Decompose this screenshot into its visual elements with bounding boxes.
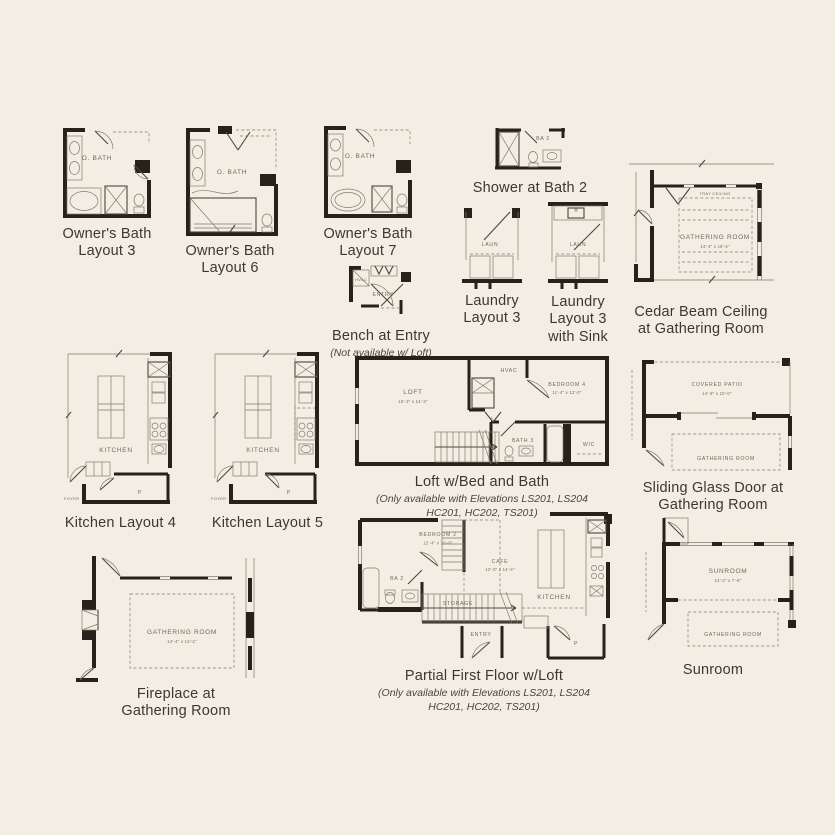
ba2-label: BA 2 (390, 576, 404, 582)
foyer-label: FOYER (211, 496, 226, 501)
room-dims: 14'-4" x 13'-2" (167, 639, 197, 644)
room-label: GATHERING ROOM (147, 629, 217, 636)
bedroom4-dims: 11'-4" x 12'-0" (552, 390, 581, 395)
laundry-3-sink-drawing: LAUN (546, 198, 610, 290)
room-label: O. BATH (345, 153, 375, 160)
plan-caption: Sliding Glass Door at Gathering Room (643, 480, 783, 515)
plan-caption: Owner's Bath Layout 6 (186, 243, 275, 278)
bedroom4-label: BEDROOM 4 (548, 382, 585, 388)
caption-line: Laundry (463, 293, 520, 310)
caption-line: Owner's Bath (324, 226, 413, 243)
sunroom-drawing: SUNROOM 14'-2" x 7'-8" GATHERING ROOM (624, 516, 802, 658)
fireplace-drawing: GATHERING ROOM 14'-4" x 13'-2" (72, 550, 280, 682)
caption-line: Kitchen Layout 5 (212, 515, 323, 532)
caption-note: (Only available with Elevations LS201, L… (378, 687, 590, 701)
plan-caption: Cedar Beam Ceiling at Gathering Room (634, 304, 767, 339)
room-dims: 14'-4" x 18'-4" (700, 244, 730, 249)
room-label: GATHERING ROOM (680, 234, 750, 241)
cafe-label: CAFE (492, 559, 509, 565)
walls (351, 266, 411, 314)
hvac-label: HVAC (501, 368, 518, 374)
caption-line: Layout 3 (463, 310, 520, 327)
plan-caption: Laundry Layout 3 (463, 293, 520, 328)
partial-first-floor-drawing: BEDROOM 2 12'-4" x 10'-8" BA 2 CAFE 12'-… (350, 506, 618, 664)
kitchen-5-drawing: KITCHEN P FOYER (205, 346, 330, 511)
room-label: LAUN (570, 242, 587, 248)
fixtures (217, 358, 317, 488)
plan-caption: Partial First Floor w/Loft (Only availab… (378, 668, 590, 715)
plan-kitchen-layout-4: KITCHEN P FOYER Kitchen Layout 4 (58, 346, 183, 532)
entry-label: ENTRY (471, 632, 492, 638)
fixtures (353, 266, 403, 306)
plan-kitchen-layout-5: KITCHEN P FOYER Kitchen Layout 5 (205, 346, 330, 532)
plan-sliding-glass-door: COVERED PATIO 14'-8" x 10'-0" GATHERING … (624, 348, 802, 515)
entry-label: ENTRY (373, 292, 394, 298)
hvac-label: HVAC (355, 277, 367, 282)
fixtures (70, 358, 170, 490)
pantry-label: P (138, 490, 142, 496)
loft-drawing: LOFT 16'-3" x 14'-3" HVAC BEDROOM 4 11'-… (351, 352, 613, 470)
caption-line: Loft w/Bed and Bath (376, 474, 588, 491)
caption-line: Gathering Room (643, 497, 783, 514)
caption-note: HC201, HC202, TS201) (378, 701, 590, 715)
storage-label: STORAGE (443, 601, 473, 607)
plan-owners-bath-layout-6: O. BATH Owner's Bath Layout 6 (171, 124, 289, 278)
caption-line: Bench at Entry (330, 328, 432, 345)
sunroom-label: SUNROOM (709, 568, 748, 575)
walls (76, 556, 254, 680)
plan-loft-with-bed-and-bath: LOFT 16'-3" x 14'-3" HVAC BEDROOM 4 11'-… (351, 352, 613, 521)
plan-shower-at-bath-2: BA 2 Shower at Bath 2 (470, 124, 590, 197)
caption-line: Layout 3 (548, 311, 608, 328)
caption-note: (Only available with Elevations LS201, L… (376, 493, 588, 507)
cedar-beam-drawing: TRAY CEILING GATHERING ROOM 14'-4" x 18'… (624, 150, 779, 300)
room-label: O. BATH (82, 155, 112, 162)
room-label: O. BATH (217, 169, 247, 176)
caption-line: Owner's Bath (186, 243, 275, 260)
bedroom2-label: BEDROOM 2 (419, 532, 456, 538)
loft-label: LOFT (403, 389, 422, 396)
bench-entry-drawing: HVAC ENTRY (345, 262, 417, 324)
plan-partial-first-floor-with-loft: BEDROOM 2 12'-4" x 10'-8" BA 2 CAFE 12'-… (350, 506, 618, 715)
fixtures (638, 188, 752, 272)
plan-laundry-layout-3-with-sink: LAUN Laundry Layout 3 with Sink (538, 198, 618, 346)
plan-caption: Owner's Bath Layout 7 (324, 226, 413, 261)
walls (186, 126, 276, 236)
plan-caption: Shower at Bath 2 (473, 180, 587, 197)
room-label: LAUN (482, 242, 499, 248)
bedroom2-dims: 12'-4" x 10'-8" (423, 541, 453, 546)
plan-caption: Kitchen Layout 5 (212, 515, 323, 532)
room-label: KITCHEN (99, 447, 132, 454)
caption-line: Sunroom (683, 662, 743, 679)
ceiling-note-label: TRAY CEILING (699, 191, 730, 196)
caption-line: Fireplace at (109, 686, 244, 703)
caption-line: Sliding Glass Door at (643, 480, 783, 497)
caption-line: with Sink (548, 329, 608, 346)
owners-bath-6-drawing: O. BATH (180, 124, 280, 239)
caption-line: Cedar Beam Ceiling (634, 304, 767, 321)
cafe-dims: 12'-0" x 14'-4" (485, 567, 515, 572)
bath3-label: BATH 3 (512, 438, 534, 444)
walls (66, 350, 172, 504)
sunroom-dims: 14'-2" x 7'-8" (715, 578, 742, 583)
caption-line: Partial First Floor w/Loft (378, 668, 590, 685)
caption-line: Layout 3 (63, 243, 152, 260)
linen-label: L (491, 415, 494, 420)
laundry-3-drawing: LAUN (460, 204, 524, 289)
kitchen-label: KITCHEN (537, 594, 570, 601)
plan-caption: Kitchen Layout 4 (65, 515, 176, 532)
plan-caption: Fireplace at Gathering Room (109, 686, 244, 721)
plan-caption: Owner's Bath Layout 3 (63, 226, 152, 261)
walls (632, 358, 792, 470)
plan-sunroom: SUNROOM 14'-2" x 7'-8" GATHERING ROOM Su… (624, 516, 802, 679)
plan-owners-bath-layout-3: O. BATH Owner's Bath Layout 3 (48, 124, 166, 261)
plan-caption: Sunroom (683, 662, 743, 679)
owners-bath-7-drawing: O. BATH (318, 122, 418, 222)
walls (213, 350, 319, 504)
walls (355, 356, 609, 466)
pantry-label: P (287, 490, 291, 496)
plan-owners-bath-layout-7: O. BATH Owner's Bath Layout 7 (309, 122, 427, 261)
caption-line: Shower at Bath 2 (473, 180, 587, 197)
caption-line: Laundry (548, 294, 608, 311)
gathering-label: GATHERING ROOM (704, 632, 762, 638)
fixtures (499, 131, 561, 167)
pantry-label: P (574, 641, 578, 647)
caption-line: Layout 7 (324, 243, 413, 260)
loft-dims: 16'-3" x 14'-3" (398, 399, 428, 404)
caption-line: Layout 6 (186, 260, 275, 277)
kitchen-4-drawing: KITCHEN P FOYER (58, 346, 183, 511)
wic-label: WIC (583, 442, 595, 448)
caption-line: Gathering Room (109, 703, 244, 720)
floorplan-options-sheet: O. BATH Owner's Bath Layout 3 (0, 0, 835, 835)
caption-line: Kitchen Layout 4 (65, 515, 176, 532)
caption-line: at Gathering Room (634, 321, 767, 338)
room-label: BA 2 (536, 136, 550, 142)
plan-fireplace-at-gathering-room: GATHERING ROOM 14'-4" x 13'-2" Fireplace… (72, 550, 280, 721)
plan-cedar-beam-ceiling: TRAY CEILING GATHERING ROOM 14'-4" x 18'… (622, 150, 780, 339)
patio-label: COVERED PATIO (692, 382, 743, 388)
shower-bath-2-drawing: BA 2 (491, 124, 569, 176)
plan-laundry-layout-3: LAUN Laundry Layout 3 (452, 204, 532, 328)
room-label: KITCHEN (246, 447, 279, 454)
caption-line: Owner's Bath (63, 226, 152, 243)
foyer-label: FOYER (64, 496, 79, 501)
patio-dims: 14'-8" x 10'-0" (702, 391, 732, 396)
plan-caption: Laundry Layout 3 with Sink (548, 294, 608, 346)
gathering-label: GATHERING ROOM (697, 456, 755, 462)
sliding-door-drawing: COVERED PATIO 14'-8" x 10'-0" GATHERING … (624, 348, 802, 476)
owners-bath-3-drawing: O. BATH (57, 124, 157, 222)
